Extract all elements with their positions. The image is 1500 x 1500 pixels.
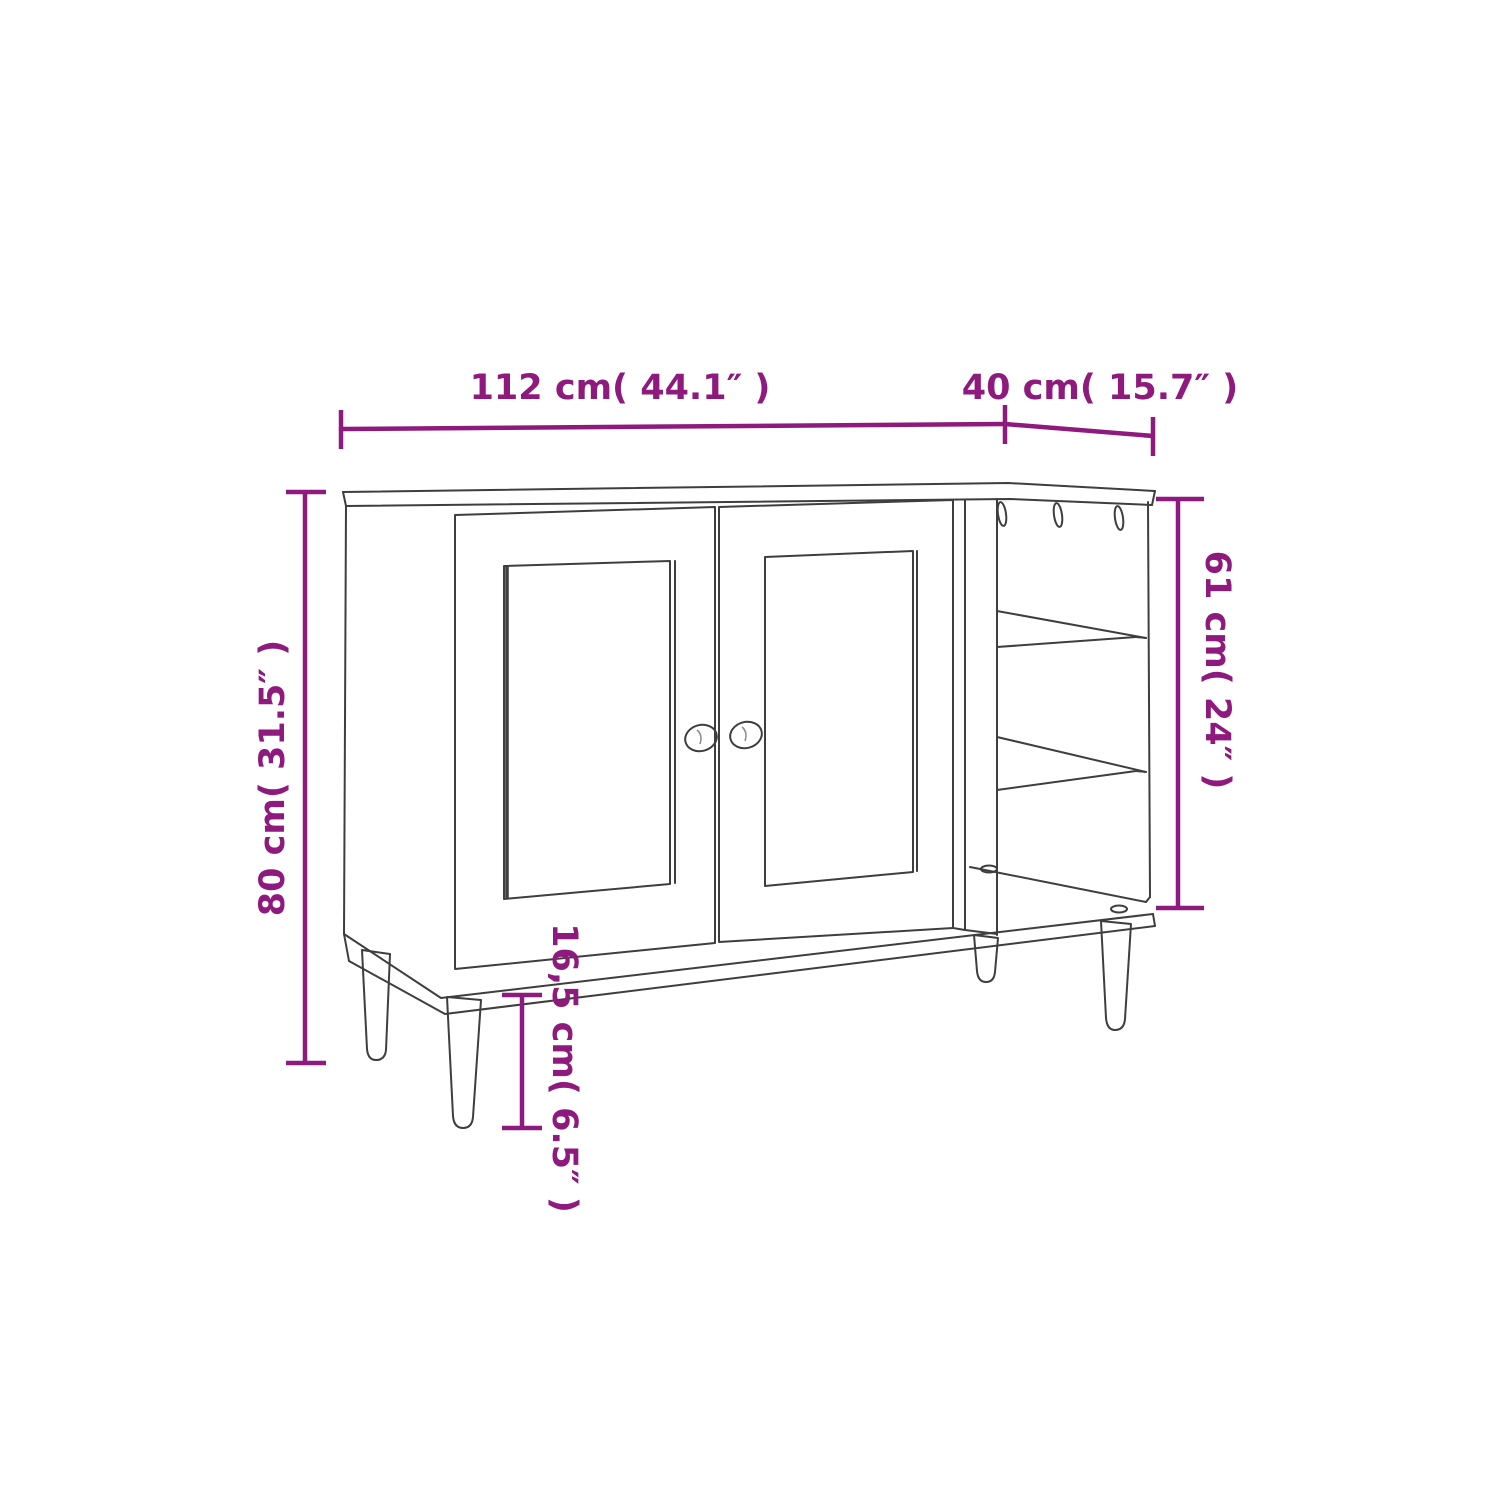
screw-cap	[1111, 906, 1127, 913]
right-side-panel-edge	[1148, 502, 1150, 897]
cabinet-drawing	[343, 483, 1155, 1128]
dimension-leg-height	[502, 995, 542, 1128]
cabinet-legs	[362, 921, 1131, 1128]
dimension-width	[341, 405, 1005, 449]
dimension-open-section-height-label: 61 cm( 24″ )	[1197, 551, 1237, 790]
carcass-left-edge	[344, 506, 346, 934]
dimension-width-label: 112 cm( 44.1″ )	[470, 368, 771, 408]
center-divider	[953, 499, 997, 935]
upper-shelf	[997, 611, 1146, 647]
front-right-leg	[1101, 921, 1131, 1030]
dimension-depth-label: 40 cm( 15.7″ )	[962, 368, 1238, 408]
dimension-open-section-height	[1156, 499, 1204, 908]
front-left-leg	[447, 997, 481, 1128]
back-right-leg	[974, 935, 998, 982]
dimension-leg-height-label: 16,5 cm( 6.5″ )	[544, 923, 584, 1213]
dimension-depth	[1005, 417, 1153, 456]
right-door	[719, 500, 953, 942]
peg-slots	[996, 502, 1124, 531]
product-dimension-diagram: 112 cm( 44.1″ ) 40 cm( 15.7″ ) 80 cm( 31…	[0, 0, 1500, 1500]
right-door-panel	[765, 551, 913, 886]
top-board	[343, 483, 1155, 506]
sideboard-dimension-drawing: 112 cm( 44.1″ ) 40 cm( 15.7″ ) 80 cm( 31…	[0, 0, 1500, 1500]
peg-slot	[1113, 506, 1124, 531]
left-door-panel	[504, 561, 670, 899]
back-left-leg	[362, 950, 390, 1060]
dimension-height-label: 80 cm( 31.5″ )	[253, 640, 293, 916]
peg-slot	[1052, 503, 1063, 528]
lower-shelf	[997, 737, 1146, 790]
left-door	[455, 507, 720, 969]
dimension-annotations: 112 cm( 44.1″ ) 40 cm( 15.7″ ) 80 cm( 31…	[253, 368, 1238, 1213]
peg-slot	[996, 502, 1007, 527]
